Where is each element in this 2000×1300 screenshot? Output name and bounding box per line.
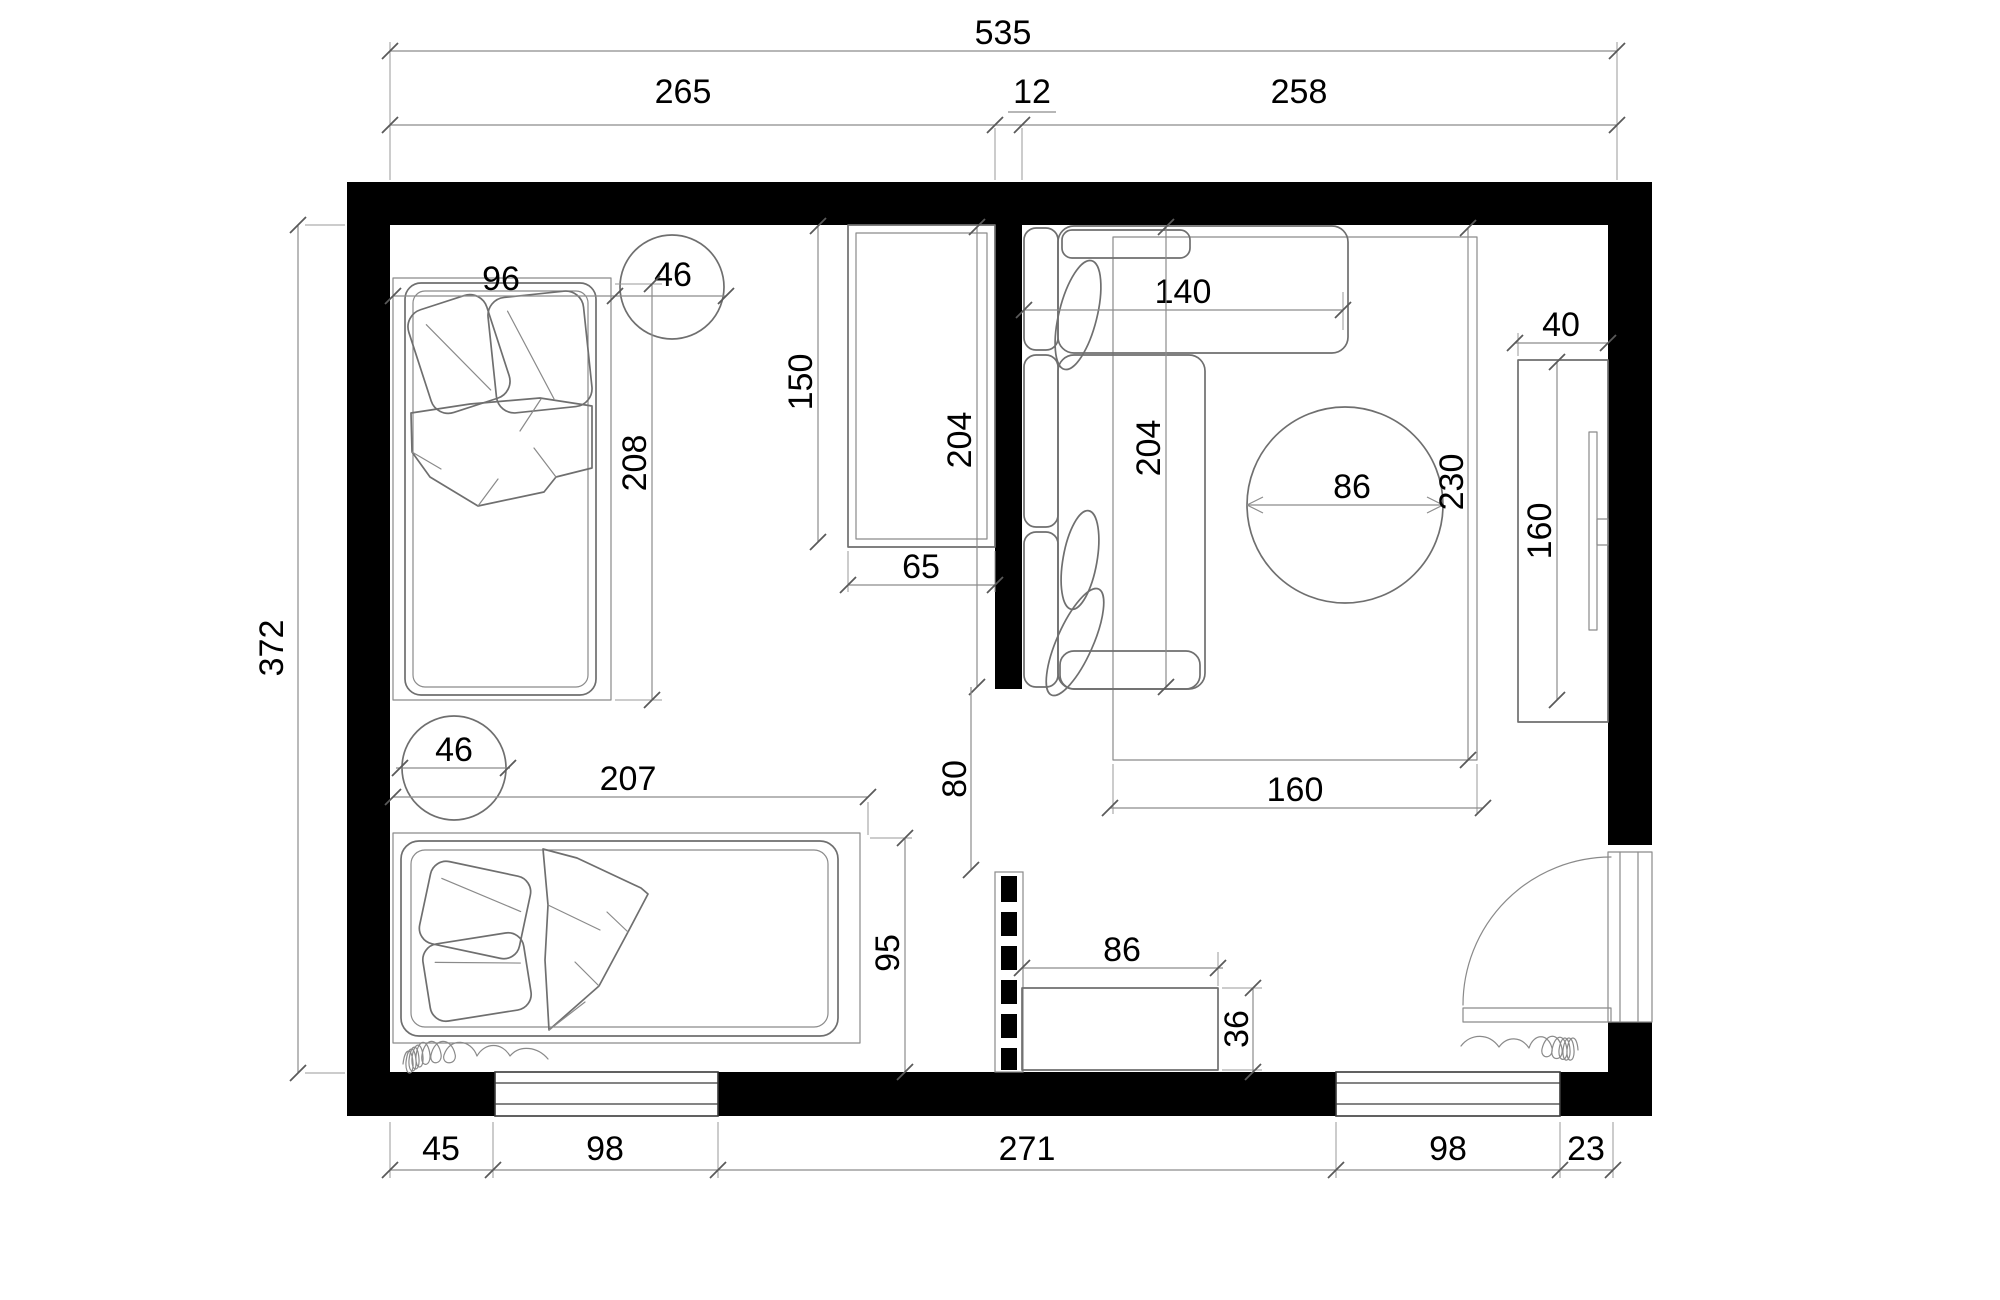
- dim-tv-length-label: 160: [1521, 503, 1559, 560]
- dim-tv-length: 160: [1521, 354, 1565, 708]
- wall-bottom-mid-seg: [718, 1072, 1336, 1116]
- dim-partition-thickness-label: 12: [1013, 73, 1051, 111]
- dim-circle1-label: 46: [654, 256, 692, 294]
- dim-room-widths: 265 12 258: [382, 73, 1625, 133]
- dim-circle2: 46: [392, 731, 516, 776]
- dim-wardrobe-depth: 65: [840, 548, 1003, 593]
- dim-chain-bottom: 45 98 271 98 23: [382, 1122, 1621, 1178]
- dim-bottom-seg3-label: 271: [999, 1130, 1056, 1168]
- sofa-back-cushion-2: [1024, 355, 1058, 527]
- dim-overall-width: 535: [382, 14, 1625, 59]
- wall-left: [347, 182, 390, 1116]
- dim-bottom-seg5-label: 23: [1567, 1130, 1605, 1168]
- dim-bed1-width-and-circle: 96 46: [385, 256, 734, 304]
- window-bottom-right: [1336, 1072, 1560, 1116]
- dim-sofa-chaise-label: 140: [1155, 273, 1212, 311]
- low-cabinet: [1022, 988, 1218, 1070]
- dim-cabinet-width: 86: [1014, 931, 1226, 986]
- bed-1-mattress: [405, 283, 596, 695]
- dim-bottom-seg1-label: 45: [422, 1130, 460, 1168]
- dim-door-opening-label: 80: [936, 760, 974, 798]
- dim-cabinet-depth-label: 36: [1218, 1010, 1256, 1048]
- sofa-chaise-cushion: [1062, 230, 1190, 258]
- wardrobe: [848, 225, 995, 547]
- dim-partition-length: 204: [941, 219, 985, 695]
- dim-partition-length-label: 204: [941, 412, 979, 469]
- dim-circle2-label: 46: [435, 731, 473, 769]
- dim-bottom-seg2-label: 98: [586, 1130, 624, 1168]
- door-leaf: [1463, 1008, 1611, 1022]
- dim-wardrobe-depth-label: 65: [902, 548, 940, 586]
- dim-wardrobe-length-label: 150: [782, 354, 820, 411]
- bed-2-blanket: [543, 849, 648, 1030]
- wall-bottom-left-seg: [347, 1072, 495, 1116]
- floor-plan-page: 535 265 12 258 372: [0, 0, 2000, 1300]
- sofa-back-cushion-3: [1024, 532, 1058, 687]
- wall-right-lower: [1608, 1022, 1652, 1074]
- dim-rug-width-label: 160: [1267, 771, 1324, 809]
- wall-right-upper: [1608, 182, 1652, 845]
- dim-cabinet-depth: 36: [1218, 980, 1262, 1080]
- dim-bed2-length-label: 207: [600, 760, 657, 798]
- dim-overall-height-label: 372: [253, 620, 291, 677]
- bed-1-blanket: [411, 398, 592, 506]
- tv-screen: [1589, 432, 1597, 630]
- sofa-seat: [1058, 355, 1205, 689]
- dim-wardrobe-length: 150: [782, 218, 826, 550]
- dim-bed1-width-label: 96: [482, 260, 520, 298]
- dim-door-opening: 80: [936, 687, 979, 878]
- wall-top: [347, 182, 1652, 225]
- dim-bed2-length: 207: [385, 760, 876, 835]
- tv-mount: [1597, 519, 1608, 545]
- dim-bed2-width: 95: [869, 830, 913, 1080]
- dim-left-room-width-label: 265: [655, 73, 712, 111]
- dim-tv-depth: 40: [1507, 306, 1616, 356]
- wall-corner-bottom-right: [1557, 1072, 1652, 1116]
- dim-rug-width: 160: [1102, 764, 1491, 816]
- curtain-squiggle-right: [1461, 1036, 1578, 1060]
- dim-bottom-seg4-label: 98: [1429, 1130, 1467, 1168]
- floor-plan-drawing: 535 265 12 258 372: [0, 0, 2000, 1300]
- dim-rug-length: 230: [1433, 220, 1476, 768]
- bed-2-pillows: [416, 858, 533, 1023]
- dim-sofa-length-label: 204: [1130, 420, 1168, 477]
- bed-1-pillows: [403, 289, 593, 418]
- partition-solid-segment: [995, 225, 1022, 689]
- curtain-squiggle-left: [403, 1041, 548, 1073]
- dim-chain-top: 535 265 12 258: [382, 14, 1625, 180]
- sofa-back-cushion-1: [1024, 228, 1058, 350]
- dim-bed1-length-label: 208: [616, 435, 654, 492]
- rug: [1113, 237, 1477, 760]
- bed-1: [393, 278, 611, 700]
- dim-tv-depth-label: 40: [1542, 306, 1580, 344]
- bed-1-boundary: [393, 278, 611, 700]
- dim-bed1-length: 208: [615, 276, 662, 708]
- dim-cabinet-width-label: 86: [1103, 931, 1141, 969]
- bed-2: [393, 833, 860, 1043]
- window-bottom-left: [495, 1072, 718, 1116]
- dim-overall-width-label: 535: [975, 14, 1032, 52]
- door-swing-arc: [1463, 857, 1611, 1005]
- dim-sofa-chaise: 140: [1016, 273, 1351, 330]
- door-frame: [1608, 852, 1652, 1022]
- sofa-pillows: [1035, 256, 1115, 702]
- dim-table-diameter-label: 86: [1333, 468, 1371, 506]
- dim-right-room-width-label: 258: [1271, 73, 1328, 111]
- partition-wall: [995, 225, 1023, 1072]
- entry-door: [1463, 845, 1652, 1022]
- dim-rug-length-label: 230: [1433, 454, 1471, 511]
- dim-overall-height: 372: [253, 217, 345, 1081]
- dim-bed2-width-label: 95: [869, 934, 907, 972]
- dim-table-diameter: 86: [1247, 468, 1443, 513]
